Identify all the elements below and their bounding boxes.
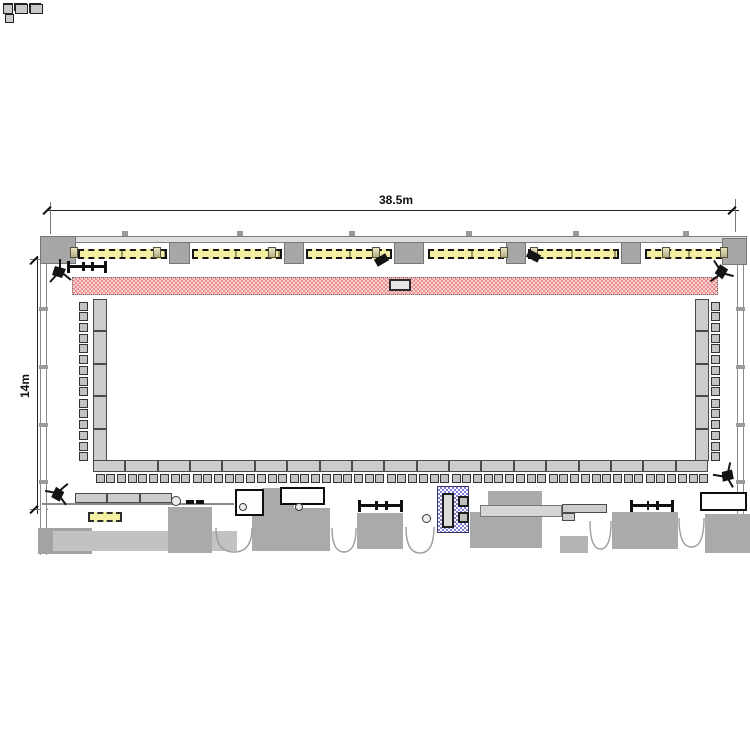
rack-bar xyxy=(630,504,674,507)
desk-segment xyxy=(481,460,513,472)
chair xyxy=(473,474,482,483)
door-swing-arc xyxy=(590,521,611,549)
chair xyxy=(117,474,126,483)
rack-tick xyxy=(385,501,388,510)
chair xyxy=(711,409,720,418)
desk-segment xyxy=(93,460,125,472)
desk-segment xyxy=(320,460,352,472)
dimension-line-left xyxy=(37,256,38,514)
stand-circle xyxy=(171,496,181,506)
chair xyxy=(711,334,720,343)
chair xyxy=(79,334,88,343)
door-swing-arc xyxy=(332,528,356,552)
chair xyxy=(354,474,363,483)
chair xyxy=(452,474,461,483)
chair xyxy=(516,474,525,483)
chair xyxy=(711,366,720,375)
chair xyxy=(278,474,287,483)
wall-tick xyxy=(573,231,579,236)
rack-tick xyxy=(91,262,94,271)
wall-tick xyxy=(122,231,128,236)
service-table-segment xyxy=(140,493,172,503)
unit-panel xyxy=(442,493,454,528)
rack-end xyxy=(400,500,403,512)
service-counter xyxy=(235,489,264,516)
left-wall xyxy=(40,250,47,555)
chair xyxy=(430,474,439,483)
rack-tick xyxy=(82,262,85,271)
chair xyxy=(602,474,611,483)
stand-circle xyxy=(422,514,431,523)
speaker-tripod-icon xyxy=(40,476,75,511)
equipment-rack xyxy=(358,500,403,512)
chair xyxy=(527,474,536,483)
chair xyxy=(79,399,88,408)
service-table-segment xyxy=(75,493,107,503)
wall-tick xyxy=(237,231,243,236)
projector-icon xyxy=(268,247,276,258)
chair xyxy=(79,420,88,429)
chair xyxy=(419,474,428,483)
chair xyxy=(96,474,105,483)
rack-end xyxy=(104,261,107,273)
rack-end xyxy=(671,500,674,512)
desk-segment xyxy=(514,460,546,472)
chair xyxy=(343,474,352,483)
desk-segment xyxy=(93,364,107,396)
chair xyxy=(711,312,720,321)
desk-segment xyxy=(93,331,107,363)
chair xyxy=(711,452,720,461)
chair xyxy=(322,474,331,483)
desk-segment xyxy=(352,460,384,472)
chair xyxy=(581,474,590,483)
service-table-segment xyxy=(107,493,139,503)
counter-equipment xyxy=(5,14,14,23)
chair xyxy=(79,302,88,311)
chair xyxy=(592,474,601,483)
chair xyxy=(678,474,687,483)
wall-tick xyxy=(683,231,689,236)
chair xyxy=(79,323,88,332)
dimension-extension-line xyxy=(735,199,736,232)
wall-column-pier xyxy=(394,242,424,264)
desk-segment xyxy=(579,460,611,472)
rack-tick xyxy=(647,501,650,510)
chair xyxy=(711,387,720,396)
desk-segment xyxy=(695,364,709,396)
desk-segment xyxy=(93,396,107,428)
chair xyxy=(79,344,88,353)
rack-end xyxy=(630,500,633,512)
desk-segment xyxy=(695,331,709,363)
chair xyxy=(225,474,234,483)
chair xyxy=(181,474,190,483)
chair xyxy=(79,431,88,440)
rack-bar xyxy=(358,504,403,507)
wall-column-pier xyxy=(284,242,304,264)
chair xyxy=(711,431,720,440)
chair xyxy=(711,442,720,451)
chair xyxy=(656,474,665,483)
adjacent-structure xyxy=(168,507,212,553)
counter-equipment xyxy=(30,4,43,14)
wall-tick xyxy=(349,231,355,236)
desk-segment xyxy=(546,460,578,472)
chair xyxy=(549,474,558,483)
chair xyxy=(634,474,643,483)
chair xyxy=(128,474,137,483)
projector-icon xyxy=(153,247,161,258)
corner-desk xyxy=(562,504,607,513)
chair xyxy=(375,474,384,483)
chair xyxy=(537,474,546,483)
wall-column-pier xyxy=(621,242,641,264)
desk-segment xyxy=(255,460,287,472)
wall-tick xyxy=(39,307,48,311)
adjacent-structure xyxy=(560,536,588,553)
chair xyxy=(440,474,449,483)
chair xyxy=(462,474,471,483)
chair xyxy=(711,355,720,364)
desk-segment xyxy=(158,460,190,472)
desk-segment xyxy=(417,460,449,472)
corner-desk-leg xyxy=(562,513,575,521)
chair xyxy=(484,474,493,483)
desk-segment xyxy=(611,460,643,472)
desk-segment xyxy=(222,460,254,472)
wall-tick xyxy=(39,423,48,427)
dimension-label-height: 14m xyxy=(18,364,32,408)
door-swing-arc xyxy=(679,518,704,547)
chair xyxy=(106,474,115,483)
adjacent-structure xyxy=(612,512,678,549)
desk-segment xyxy=(384,460,416,472)
floor-vent-box xyxy=(88,512,122,522)
rack-tick xyxy=(375,501,378,510)
chair xyxy=(365,474,374,483)
unit-box xyxy=(458,496,469,507)
wall-tick xyxy=(39,365,48,369)
floor-plan-canvas: 38.5m 14m xyxy=(0,0,750,750)
chair xyxy=(290,474,299,483)
desk-segment xyxy=(449,460,481,472)
equipment-rack xyxy=(630,500,674,512)
desk-segment xyxy=(93,299,107,331)
stage-lectern xyxy=(389,279,411,291)
service-counter xyxy=(280,487,325,505)
rack-tick xyxy=(656,501,659,510)
coat-hook xyxy=(186,500,194,504)
dimension-label-width: 38.5m xyxy=(356,193,436,207)
chair xyxy=(79,366,88,375)
desk-segment xyxy=(190,460,222,472)
chair xyxy=(408,474,417,483)
chair xyxy=(559,474,568,483)
chair xyxy=(79,387,88,396)
adjacent-structure xyxy=(357,513,403,549)
projector-icon xyxy=(500,247,508,258)
chair xyxy=(235,474,244,483)
unit-box xyxy=(458,512,469,523)
chair xyxy=(333,474,342,483)
chair xyxy=(711,377,720,386)
chair xyxy=(397,474,406,483)
desk-segment xyxy=(93,429,107,461)
counter-equipment xyxy=(3,4,13,14)
coat-hook xyxy=(196,500,204,504)
wall-tick xyxy=(736,307,745,311)
door-swing-arc xyxy=(406,527,434,553)
speaker-tripod-icon xyxy=(45,256,75,286)
chair xyxy=(160,474,169,483)
projector-icon xyxy=(662,247,670,258)
desk-segment xyxy=(676,460,708,472)
chair xyxy=(646,474,655,483)
stand-circle xyxy=(239,503,247,511)
adjacent-structure xyxy=(470,512,542,548)
chair xyxy=(79,409,88,418)
chair xyxy=(699,474,708,483)
chair xyxy=(711,399,720,408)
wall-column-pier xyxy=(506,242,526,264)
desk-segment xyxy=(695,429,709,461)
chair xyxy=(246,474,255,483)
chair xyxy=(268,474,277,483)
chair xyxy=(711,302,720,311)
chair xyxy=(570,474,579,483)
counter-equipment xyxy=(15,4,28,14)
chair xyxy=(79,377,88,386)
stand-circle xyxy=(295,503,303,511)
door-swing-arc xyxy=(216,528,252,552)
chair xyxy=(711,344,720,353)
window-strip xyxy=(428,249,504,259)
wall-tick xyxy=(466,231,472,236)
south-wall-line xyxy=(42,503,234,505)
desk-segment xyxy=(695,396,709,428)
desk-segment xyxy=(125,460,157,472)
dimension-line-top xyxy=(46,210,739,211)
chair xyxy=(214,474,223,483)
chair xyxy=(79,452,88,461)
chair xyxy=(711,323,720,332)
chair xyxy=(613,474,622,483)
blue-technical-unit xyxy=(437,486,469,533)
chair xyxy=(711,420,720,429)
wall-tick xyxy=(736,365,745,369)
chair xyxy=(149,474,158,483)
desk-segment xyxy=(287,460,319,472)
wall-column-pier xyxy=(169,242,190,264)
chair xyxy=(311,474,320,483)
chair xyxy=(300,474,309,483)
rack-end xyxy=(358,500,361,512)
chair xyxy=(257,474,266,483)
chair xyxy=(138,474,147,483)
window-strip xyxy=(528,249,619,259)
chair xyxy=(203,474,212,483)
chair xyxy=(494,474,503,483)
wall-tick xyxy=(736,423,745,427)
chair xyxy=(505,474,514,483)
desk-segment xyxy=(695,299,709,331)
chair xyxy=(387,474,396,483)
chair xyxy=(624,474,633,483)
chair xyxy=(79,312,88,321)
chair xyxy=(689,474,698,483)
chair xyxy=(667,474,676,483)
side-table xyxy=(480,505,562,517)
desk-segment xyxy=(643,460,675,472)
chair xyxy=(171,474,180,483)
adjacent-structure xyxy=(705,514,750,553)
chair xyxy=(193,474,202,483)
chair xyxy=(79,442,88,451)
chair xyxy=(79,355,88,364)
